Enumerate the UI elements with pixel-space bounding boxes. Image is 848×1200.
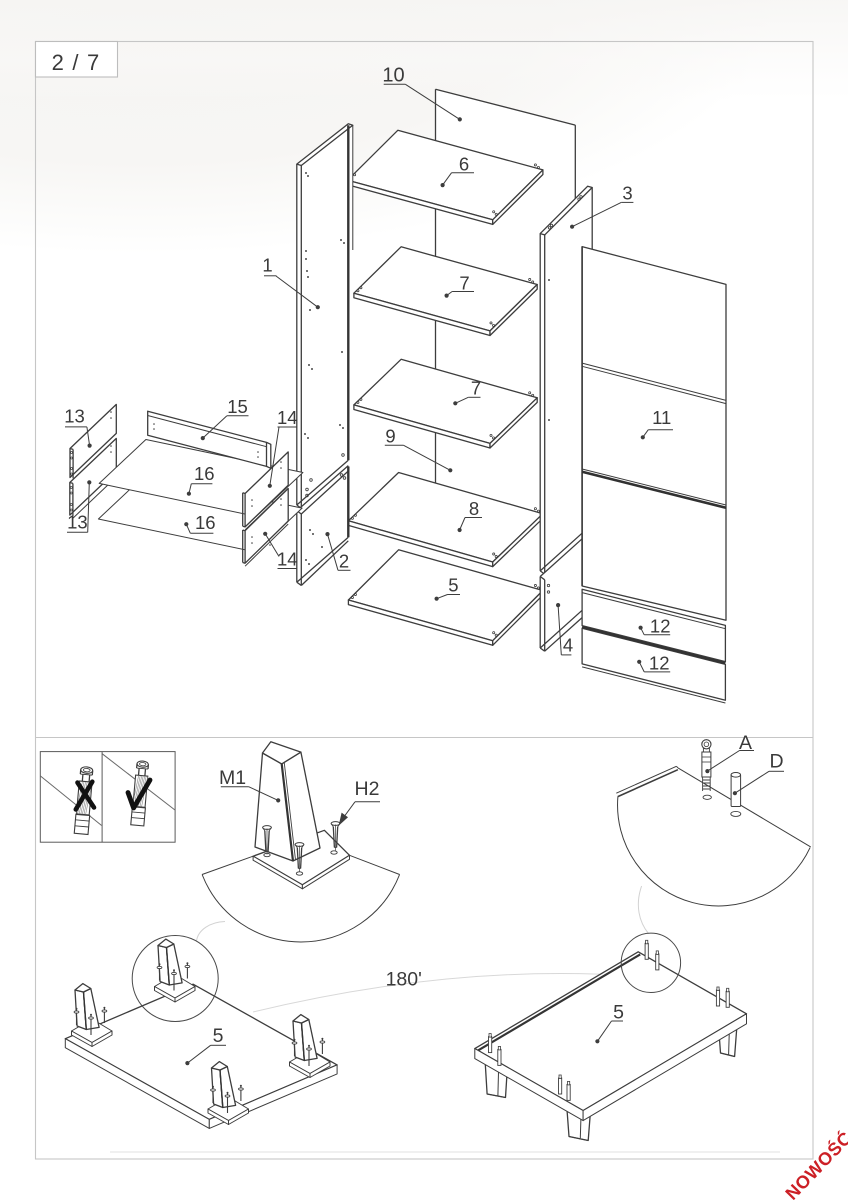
svg-text:2: 2 (339, 551, 349, 572)
svg-text:1: 1 (262, 255, 272, 276)
svg-text:3: 3 (622, 183, 632, 204)
svg-text:14: 14 (277, 407, 298, 428)
svg-text:16: 16 (194, 463, 215, 484)
svg-text:6: 6 (459, 154, 469, 175)
svg-text:13: 13 (67, 512, 88, 533)
svg-text:12: 12 (650, 616, 671, 637)
svg-text:M1: M1 (219, 767, 246, 789)
svg-text:7: 7 (459, 273, 469, 294)
svg-text:14: 14 (277, 549, 298, 570)
svg-text:11: 11 (652, 407, 671, 428)
svg-text:NOWOŚĆ: NOWOŚĆ (781, 1127, 848, 1200)
svg-text:2 / 7: 2 / 7 (52, 50, 101, 75)
svg-text:8: 8 (469, 498, 479, 519)
svg-text:12: 12 (649, 653, 670, 674)
svg-text:16: 16 (195, 512, 216, 533)
svg-text:H2: H2 (355, 778, 380, 800)
svg-text:7: 7 (471, 378, 481, 399)
svg-text:5: 5 (613, 1001, 624, 1023)
svg-text:5: 5 (213, 1025, 224, 1047)
svg-text:10: 10 (382, 65, 404, 87)
svg-text:9: 9 (385, 426, 395, 447)
svg-text:5: 5 (448, 575, 458, 596)
svg-text:15: 15 (227, 396, 248, 417)
svg-text:13: 13 (64, 406, 85, 427)
svg-text:180': 180' (386, 968, 422, 990)
svg-text:D: D (769, 751, 783, 773)
svg-text:4: 4 (563, 635, 573, 656)
